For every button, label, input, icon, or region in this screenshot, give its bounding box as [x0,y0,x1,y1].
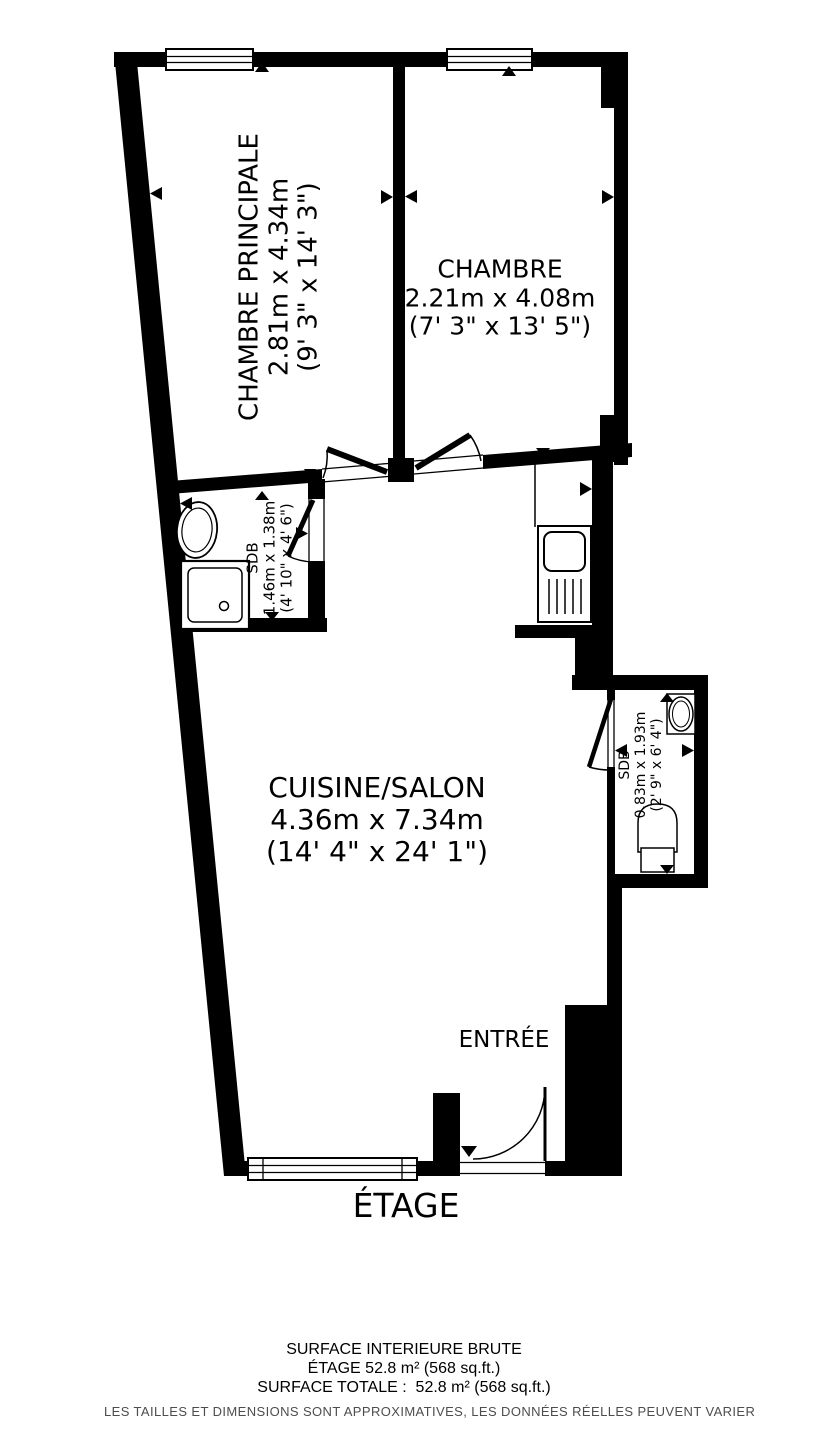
room-label-chambre: CHAMBRE 2.21m x 4.08m (7' 3" x 13' 5") [405,255,596,341]
dimension-arrow [405,190,417,203]
room-label-sdb1: SDB 1.46m x 1.38m (4' 10" x 4' 6") [244,501,295,615]
room-name: CHAMBRE [405,255,596,284]
floor-title: ÉTAGE [353,1187,460,1225]
wall-bottom-right [545,1161,622,1176]
dimension-arrow [150,187,162,200]
room-dimensions-metric: 4.36m x 7.34m [266,804,488,836]
window-chambre-principale [166,49,253,70]
wall-sdb2-top [572,675,708,690]
room-label-sdb2: SDB 0.83m x 1.93m (2' 9" x 6' 4") [618,712,666,819]
room-name: ENTRÉE [459,1027,550,1053]
room-name: CHAMBRE PRINCIPALE [236,133,266,421]
wall-step-block [575,625,613,680]
room-name: CUISINE/SALON [266,772,488,804]
room-name: SDB [618,712,634,819]
room-dimensions-imperial: (14' 4" x 24' 1") [266,836,488,868]
dimension-arrow [580,482,592,496]
wall-kitchen-right [592,450,613,630]
dimension-arrow [682,744,694,757]
room-dimensions-imperial: (2' 9" x 6' 4") [650,712,666,819]
surface-total-value: SURFACE TOTALE : 52.8 m² (568 sq.ft.) [104,1378,704,1397]
room-dimensions-metric: 0.83m x 1.93m [634,712,650,819]
wall-bedrooms-bottom-left [170,469,322,494]
surface-summary: SURFACE INTERIEURE BRUTE ÉTAGE 52.8 m² (… [104,1340,704,1421]
room-dimensions-metric: 1.46m x 1.38m [261,501,278,615]
wall-bedroom-divider [393,67,405,470]
room-label-cuisine-salon: CUISINE/SALON 4.36m x 7.34m (14' 4" x 24… [266,772,488,868]
surface-floor-value: ÉTAGE 52.8 m² (568 sq.ft.) [104,1359,704,1378]
door-chambre [416,435,481,468]
window-chambre [447,49,532,70]
door-entrance [473,1087,545,1161]
dimension-arrow [255,491,269,500]
room-dimensions-metric: 2.81m x 4.34m [265,133,295,421]
dimension-arrow [381,190,393,204]
shower-icon [181,561,249,629]
room-dimensions-metric: 2.21m x 4.08m [405,284,596,313]
wall-divider-stub [388,458,414,482]
room-name: SDB [244,501,261,615]
wall-sdb2-left-lower [607,767,615,874]
dimension-arrow [602,190,614,204]
dimensions-disclaimer: LES TAILLES ET DIMENSIONS SONT APPROXIMA… [104,1402,704,1421]
room-dimensions-imperial: (4' 10" x 4' 6") [279,501,296,615]
wall-below-sdb2 [607,888,622,1005]
door-chambre-principale [323,449,387,478]
surface-summary-title: SURFACE INTERIEURE BRUTE [104,1340,704,1359]
wall-entrance-stub [433,1093,460,1161]
dimension-arrow [461,1146,477,1157]
floor-title-text: ÉTAGE [353,1187,460,1225]
room-dimensions-imperial: (7' 3" x 13' 5") [405,312,596,341]
wall-sdb2-left-upper [607,690,615,700]
wall-sdb2-bottom [607,874,708,888]
room-label-chambre-principale: CHAMBRE PRINCIPALE 2.81m x 4.34m (9' 3" … [236,133,325,421]
wall-right-upper [614,52,628,465]
floor-plan-page: CHAMBRE PRINCIPALE 2.81m x 4.34m (9' 3" … [0,0,820,1440]
room-dimensions-imperial: (9' 3" x 14' 3") [295,133,325,421]
wall-sdb2-right [694,675,708,888]
wall-entrance-block [565,1005,622,1176]
wall-right-notch-top [601,67,614,108]
window-cuisine-salon [248,1158,417,1180]
room-label-entree: ENTRÉE [459,1027,550,1053]
